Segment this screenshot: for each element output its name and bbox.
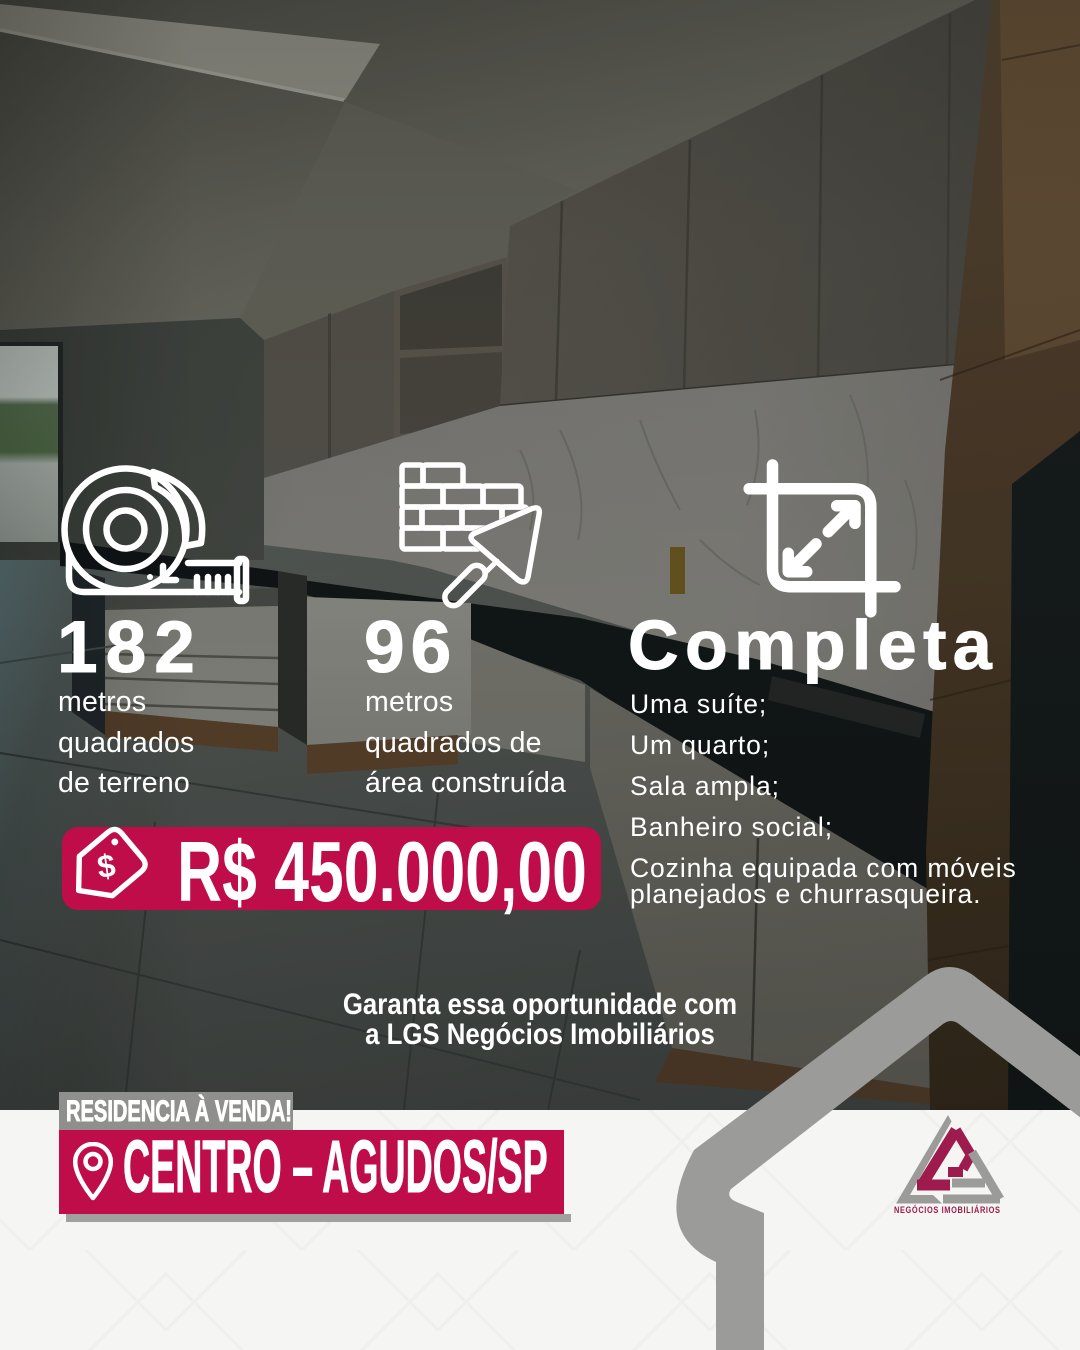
svg-text:$: $ [95,847,118,885]
